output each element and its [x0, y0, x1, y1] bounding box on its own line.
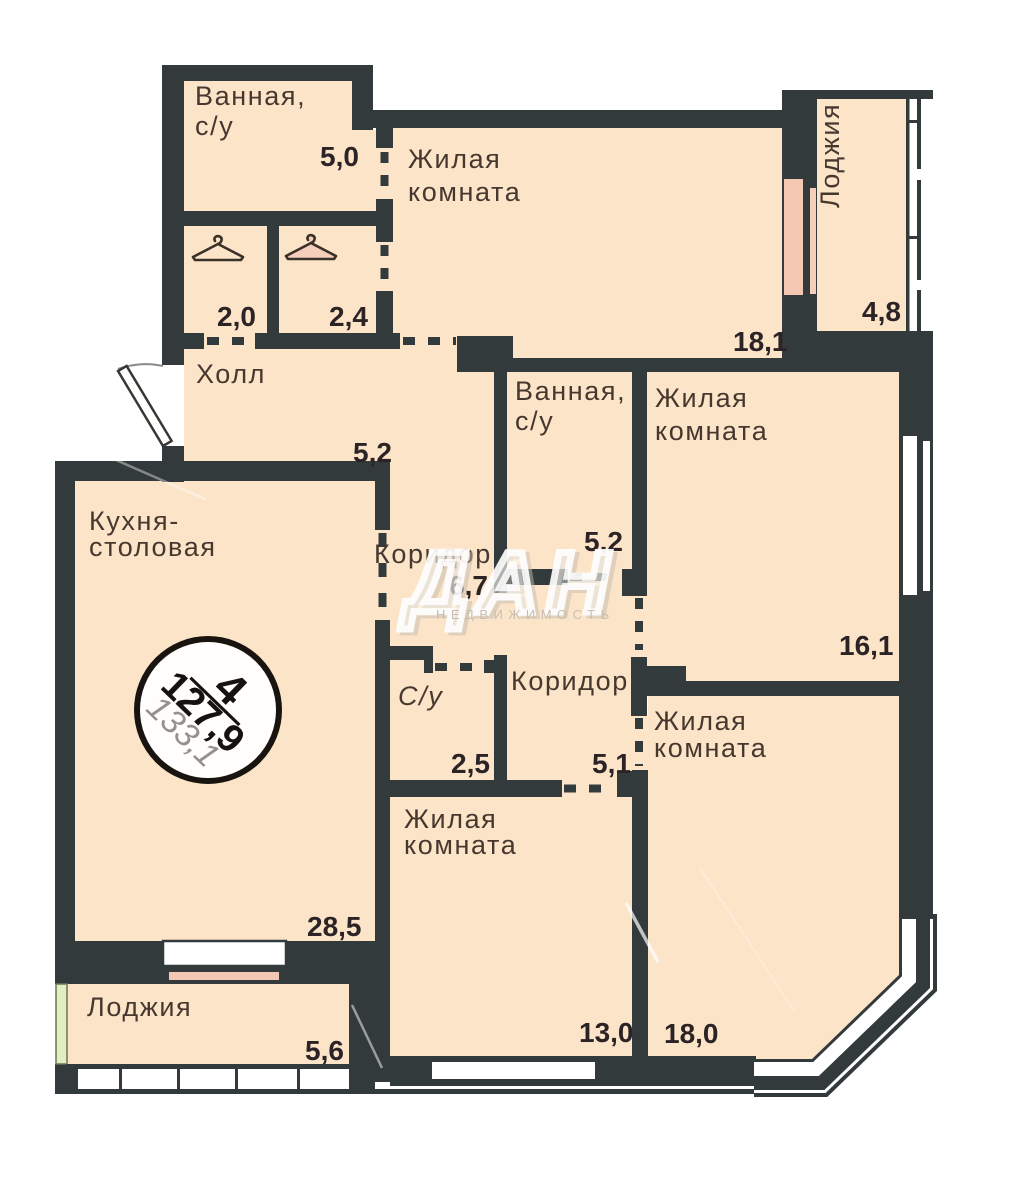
svg-text:НЕДВИЖИМОСТЬ: НЕДВИЖИМОСТЬ — [436, 607, 615, 622]
svg-text:5,6: 5,6 — [305, 1035, 344, 1066]
svg-text:Лоджия: Лоджия — [815, 103, 845, 208]
svg-text:комната: комната — [404, 830, 517, 860]
svg-text:Лоджия: Лоджия — [87, 992, 192, 1022]
svg-text:столовая: столовая — [89, 532, 217, 562]
svg-text:28,5: 28,5 — [307, 911, 362, 942]
svg-text:комната: комната — [408, 177, 521, 207]
svg-text:18,0: 18,0 — [664, 1018, 719, 1049]
svg-text:5,0: 5,0 — [320, 141, 359, 172]
svg-text:Ванная,: Ванная, — [515, 376, 626, 406]
svg-text:2,4: 2,4 — [329, 301, 368, 332]
svg-text:2,5: 2,5 — [451, 748, 490, 779]
svg-text:Ванная,: Ванная, — [195, 81, 306, 111]
svg-text:2,0: 2,0 — [217, 301, 256, 332]
svg-text:5,1: 5,1 — [592, 748, 631, 779]
svg-text:С/у: С/у — [398, 681, 443, 711]
svg-text:18,1: 18,1 — [733, 326, 788, 357]
svg-text:Жилая: Жилая — [654, 706, 747, 736]
svg-text:комната: комната — [654, 733, 767, 763]
svg-text:5,2: 5,2 — [353, 437, 392, 468]
svg-text:4,8: 4,8 — [862, 296, 901, 327]
svg-text:16,1: 16,1 — [839, 630, 894, 661]
svg-text:комната: комната — [655, 416, 768, 446]
svg-text:Жилая: Жилая — [655, 383, 748, 413]
svg-text:с/у: с/у — [515, 406, 554, 436]
svg-text:с/у: с/у — [195, 111, 234, 141]
svg-text:13,0: 13,0 — [579, 1017, 634, 1048]
svg-text:Жилая: Жилая — [408, 144, 501, 174]
svg-text:Коридор: Коридор — [511, 666, 629, 696]
svg-text:Холл: Холл — [196, 359, 266, 389]
